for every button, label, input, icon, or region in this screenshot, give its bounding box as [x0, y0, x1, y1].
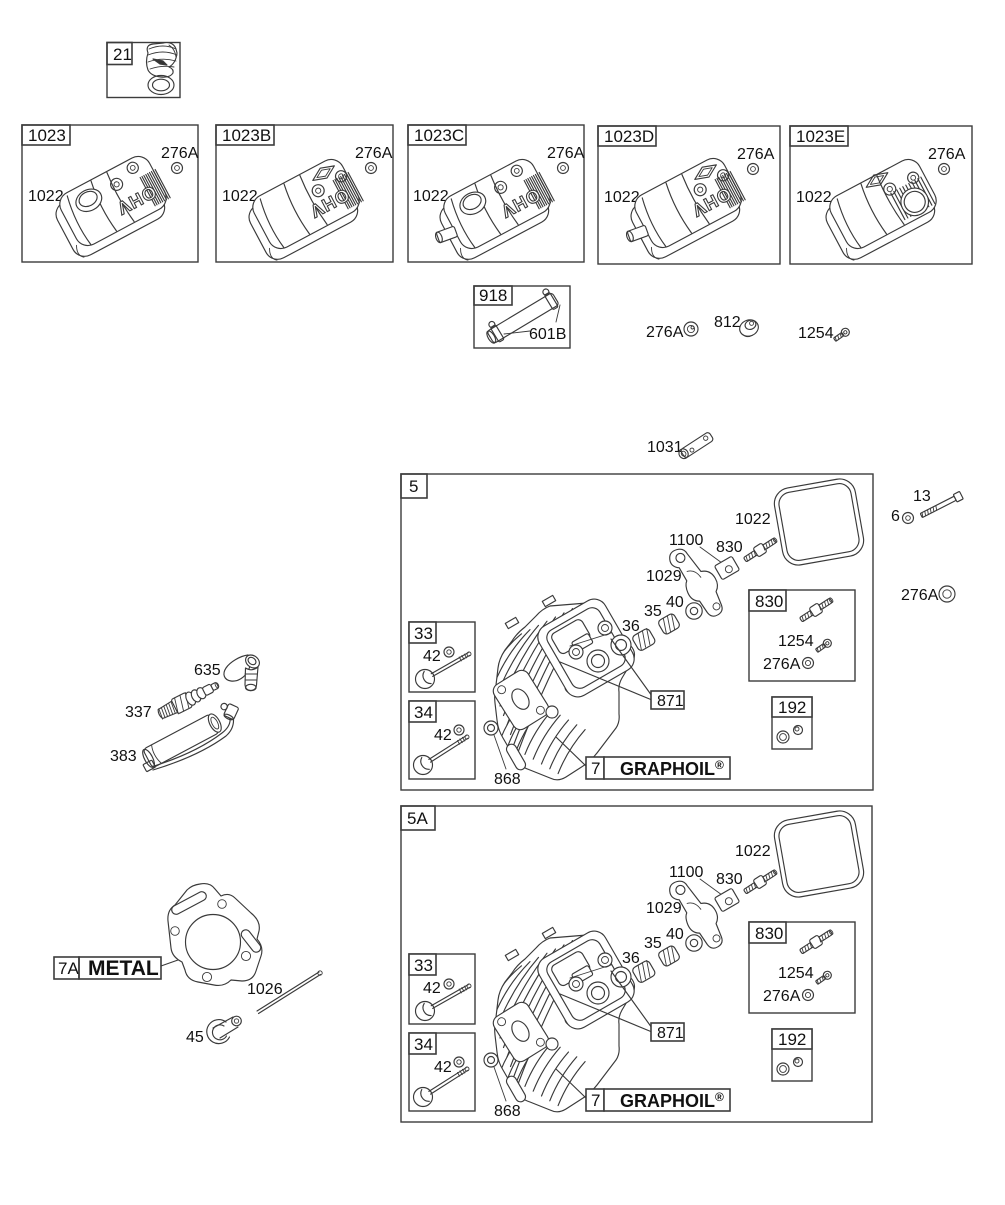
svg-text:1023D: 1023D: [604, 127, 654, 146]
svg-text:1254: 1254: [778, 965, 814, 982]
svg-text:35: 35: [644, 935, 662, 952]
svg-text:276A: 276A: [161, 145, 199, 162]
svg-text:918: 918: [479, 286, 507, 305]
svg-text:276A: 276A: [763, 988, 801, 1005]
svg-text:35: 35: [644, 603, 662, 620]
svg-text:1023B: 1023B: [222, 126, 271, 145]
svg-text:1022: 1022: [28, 188, 64, 205]
svg-text:5: 5: [409, 477, 418, 496]
svg-text:1026: 1026: [247, 981, 283, 998]
svg-text:33: 33: [414, 624, 433, 643]
svg-text:830: 830: [716, 871, 743, 888]
svg-text:1254: 1254: [778, 633, 814, 650]
svg-text:1022: 1022: [222, 188, 258, 205]
svg-text:1100: 1100: [669, 532, 704, 549]
svg-text:1022: 1022: [796, 189, 832, 206]
svg-text:830: 830: [716, 539, 743, 556]
svg-text:192: 192: [778, 1030, 806, 1049]
svg-text:34: 34: [414, 703, 433, 722]
svg-text:42: 42: [434, 1059, 452, 1076]
svg-text:36: 36: [622, 950, 640, 967]
svg-text:1029: 1029: [646, 900, 682, 917]
svg-text:1254: 1254: [798, 325, 834, 342]
svg-text:42: 42: [423, 980, 441, 997]
svg-text:1023: 1023: [28, 126, 66, 145]
svg-text:276A: 276A: [355, 145, 393, 162]
svg-text:METAL: METAL: [88, 957, 159, 980]
svg-text:1022: 1022: [735, 843, 771, 860]
svg-text:1029: 1029: [646, 568, 682, 585]
svg-text:635: 635: [194, 662, 221, 679]
svg-text:1031: 1031: [647, 439, 683, 456]
svg-text:13: 13: [913, 488, 931, 505]
svg-text:871: 871: [657, 693, 684, 710]
svg-text:7A: 7A: [58, 959, 79, 978]
svg-text:40: 40: [666, 926, 684, 943]
svg-text:868: 868: [494, 1103, 521, 1120]
svg-text:36: 36: [622, 618, 640, 635]
svg-text:871: 871: [657, 1025, 684, 1042]
svg-text:812: 812: [714, 314, 741, 331]
svg-text:276A: 276A: [737, 146, 775, 163]
svg-text:7: 7: [591, 1091, 600, 1110]
svg-text:33: 33: [414, 956, 433, 975]
svg-text:830: 830: [755, 924, 783, 943]
svg-text:276A: 276A: [763, 656, 801, 673]
svg-text:34: 34: [414, 1035, 433, 1054]
svg-text:337: 337: [125, 704, 152, 721]
svg-text:1023E: 1023E: [796, 127, 845, 146]
svg-text:5A: 5A: [407, 809, 428, 828]
svg-text:1023C: 1023C: [414, 126, 464, 145]
svg-text:1100: 1100: [669, 864, 704, 881]
svg-text:6: 6: [891, 508, 900, 525]
svg-text:40: 40: [666, 594, 684, 611]
svg-text:601B: 601B: [529, 326, 566, 343]
svg-text:42: 42: [423, 648, 441, 665]
svg-text:GRAPHOIL®: GRAPHOIL®: [620, 1090, 724, 1111]
svg-text:383: 383: [110, 748, 137, 765]
svg-text:276A: 276A: [646, 324, 684, 341]
svg-text:276A: 276A: [901, 587, 939, 604]
svg-text:1022: 1022: [604, 189, 640, 206]
svg-text:276A: 276A: [928, 146, 966, 163]
svg-text:GRAPHOIL®: GRAPHOIL®: [620, 758, 724, 779]
svg-text:21: 21: [113, 45, 132, 64]
svg-text:1022: 1022: [413, 188, 449, 205]
svg-text:830: 830: [755, 592, 783, 611]
svg-text:42: 42: [434, 727, 452, 744]
svg-text:7: 7: [591, 759, 600, 778]
svg-text:1022: 1022: [735, 511, 771, 528]
svg-text:45: 45: [186, 1029, 204, 1046]
svg-text:868: 868: [494, 771, 521, 788]
svg-text:276A: 276A: [547, 145, 585, 162]
svg-text:192: 192: [778, 698, 806, 717]
